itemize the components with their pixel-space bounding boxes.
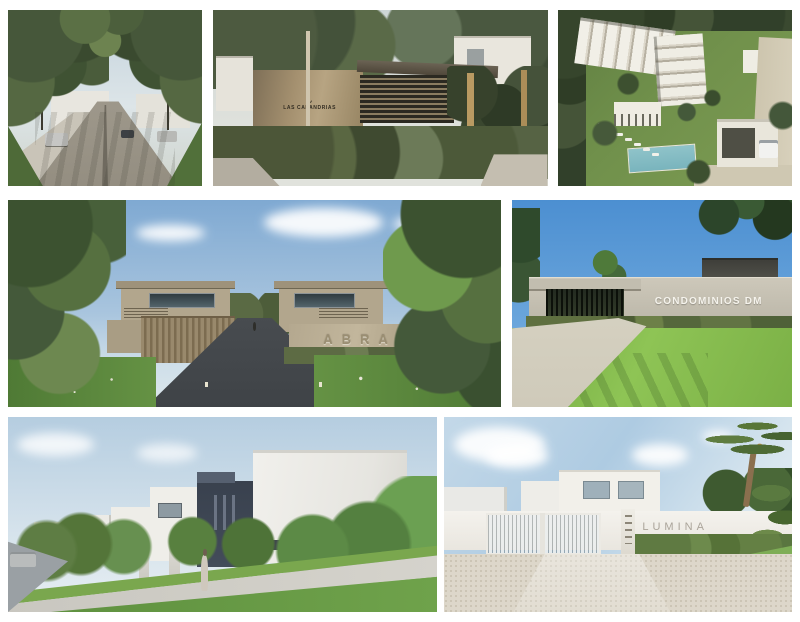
lumina-sign-text: LUMINA [642,521,708,533]
tree-canopy-top [55,10,156,63]
building-right-window [294,293,355,307]
building-back-left [216,56,253,111]
las-calandrias-sign: ∿ LAS CALANDRIAS [273,89,347,121]
cloud-big-left-2 [486,444,549,467]
cloud-left [17,433,94,456]
render-collage: ∿ LAS CALANDRIAS [0,0,800,622]
road-shadow-stripes [35,112,175,186]
bollard-light-left [205,382,208,387]
street-houses-photo[interactable] [8,417,437,612]
abra-entrance-photo[interactable]: ABRA [8,200,501,407]
gate-center-post [540,513,545,556]
building-left-roof [116,281,234,289]
sign-pillar-marks [625,515,632,544]
building-right-pergola [319,308,368,318]
cloud-right [632,444,688,465]
collage-row-middle: ABRA CONDOMINIOS DM [8,200,792,407]
tree-cluster-right [383,200,501,407]
bollard-light-right [319,382,322,387]
building-center-window-1 [583,481,609,499]
building-right-roof [274,281,387,289]
gate-slats [360,75,454,123]
condominios-dm-sign-text: CONDOMINIOS DM [655,296,763,307]
collage-row-top: ∿ LAS CALANDRIAS [8,10,792,186]
car-parked [10,552,36,568]
collage-row-bottom: LUMINA [8,417,792,612]
building-center-window-2 [618,481,644,499]
pine-branch-top-right [691,200,792,246]
building-left-window [149,293,215,307]
building-back-right-window [467,49,484,67]
las-calandrias-sign-text: LAS CALANDRIAS [283,105,336,111]
scattered-trees [558,10,792,186]
condominios-dm-entrance-photo[interactable]: CONDOMINIOS DM [512,200,792,407]
aerial-townhouses-photo[interactable] [558,10,792,186]
condominios-dm-sign: CONDOMINIOS DM [655,293,787,310]
pedestrian-body [201,555,208,590]
las-calandrias-entrance-photo[interactable]: ∿ LAS CALANDRIAS [213,10,548,186]
cloud-large [264,208,382,237]
tree-cluster-left [8,200,126,407]
lumina-entrance-photo[interactable]: LUMINA [444,417,792,612]
cloud-mid [137,444,197,462]
street-view-photo[interactable] [8,10,202,186]
